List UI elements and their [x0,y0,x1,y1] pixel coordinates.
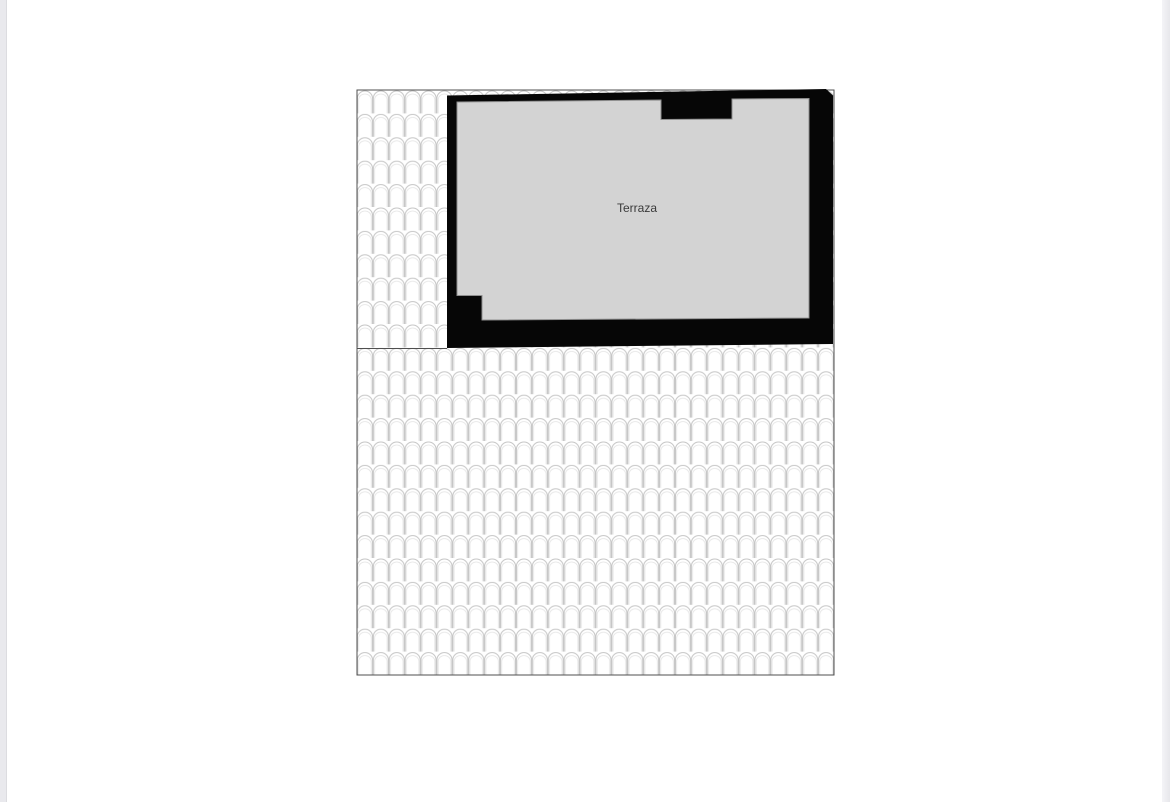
floorplan-stage: Terraza [0,0,1170,802]
floorplan-drawing: Terraza [0,0,1170,802]
room-label-terraza: Terraza [617,201,657,215]
